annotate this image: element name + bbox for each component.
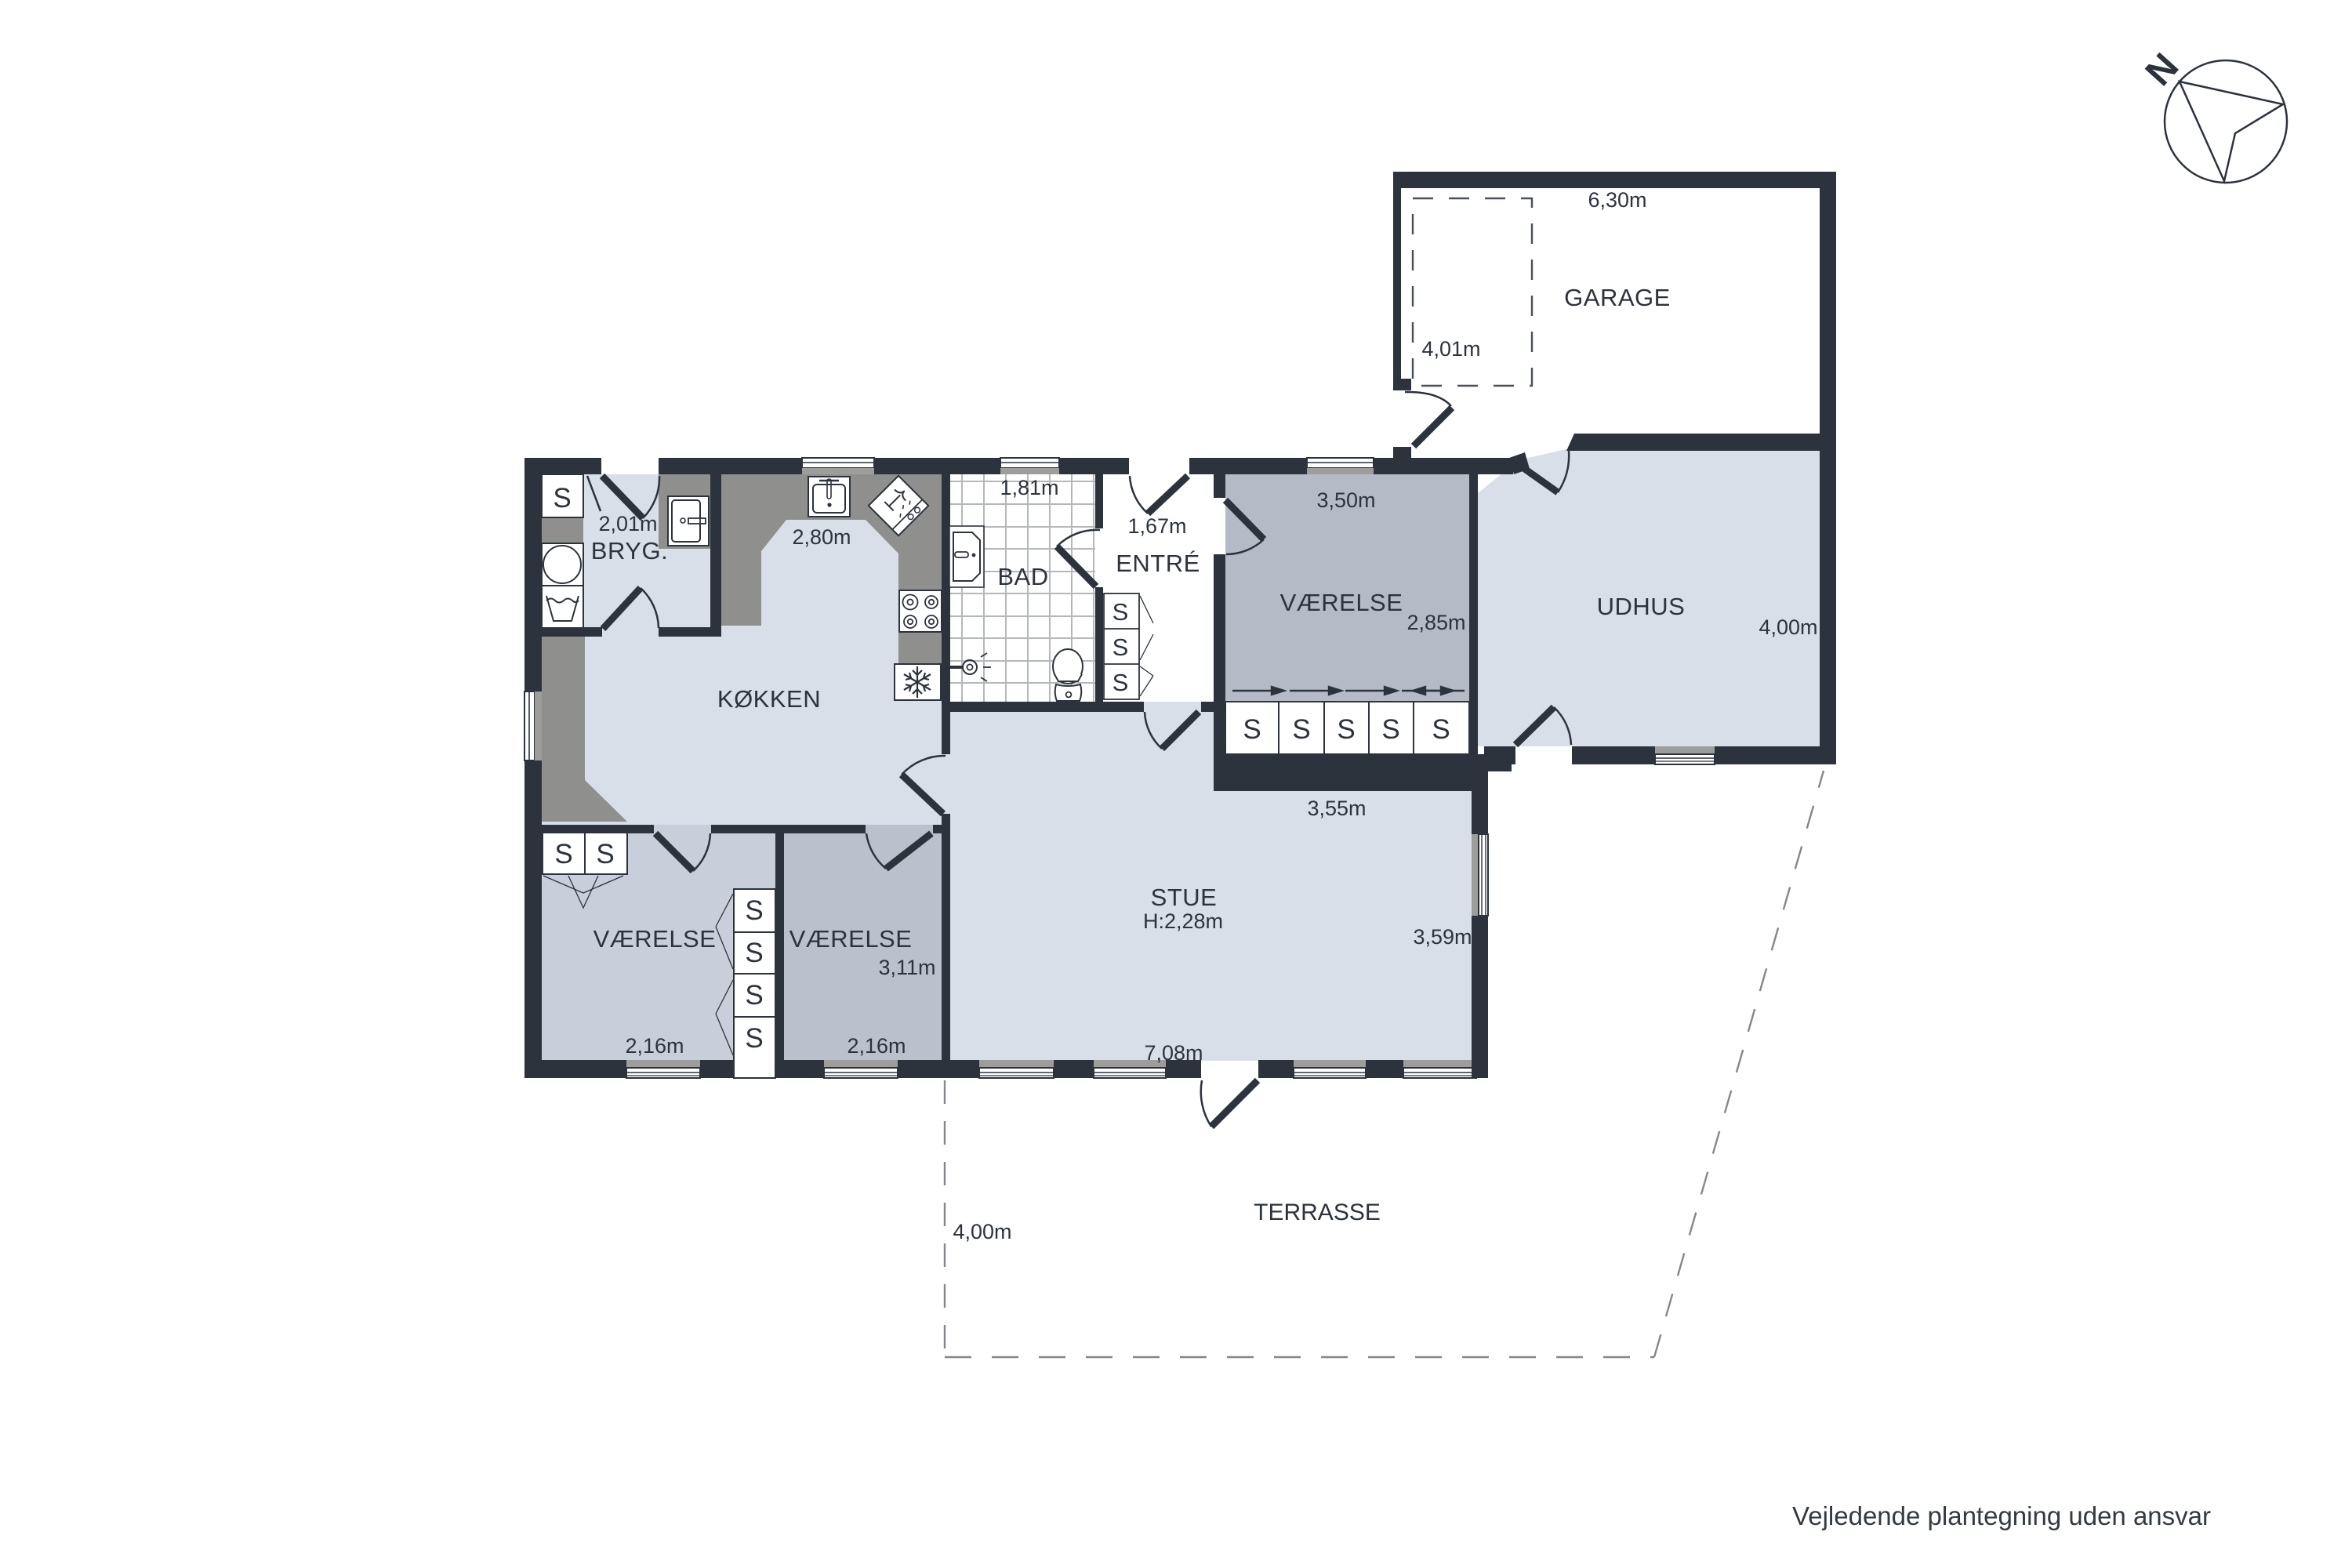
svg-text:S: S — [554, 839, 572, 869]
svg-text:3,55m: 3,55m — [1307, 797, 1366, 820]
svg-text:2,85m: 2,85m — [1406, 611, 1465, 634]
svg-text:7,08m: 7,08m — [1144, 1041, 1203, 1065]
svg-text:3,11m: 3,11m — [878, 956, 935, 979]
svg-text:1,67m: 1,67m — [1127, 514, 1186, 538]
svg-text:S: S — [745, 938, 763, 968]
svg-text:6,30m: 6,30m — [1588, 188, 1646, 212]
svg-text:4,01m: 4,01m — [1421, 337, 1480, 361]
svg-text:4,00m: 4,00m — [1759, 615, 1817, 639]
svg-text:VÆRELSE: VÆRELSE — [1280, 589, 1403, 616]
svg-text:S: S — [745, 980, 763, 1011]
svg-text:KØKKEN: KØKKEN — [717, 685, 821, 713]
svg-text:3,50m: 3,50m — [1316, 488, 1375, 512]
svg-text:S: S — [1381, 714, 1399, 745]
svg-text:BRYG.: BRYG. — [591, 537, 668, 564]
svg-text:S: S — [1432, 714, 1450, 745]
svg-text:Vejledende plantegning uden an: Vejledende plantegning uden ansvar — [1792, 1501, 2211, 1530]
svg-text:S: S — [1292, 714, 1310, 745]
svg-text:2,01m: 2,01m — [598, 512, 657, 535]
svg-text:S: S — [596, 839, 614, 869]
svg-text:STUE: STUE — [1151, 884, 1218, 911]
svg-text:S: S — [745, 895, 763, 926]
svg-text:2,80m: 2,80m — [792, 525, 851, 549]
svg-text:VÆRELSE: VÆRELSE — [789, 925, 913, 953]
svg-text:S: S — [1112, 669, 1129, 696]
svg-text:S: S — [1112, 598, 1129, 626]
svg-text:UDHUS: UDHUS — [1597, 593, 1686, 620]
svg-text:3,59m: 3,59m — [1413, 925, 1472, 949]
svg-text:S: S — [1112, 633, 1129, 661]
svg-text:ENTRÉ: ENTRÉ — [1116, 550, 1200, 577]
svg-text:S: S — [553, 483, 571, 514]
svg-text:2,16m: 2,16m — [847, 1034, 906, 1058]
svg-text:1,81m: 1,81m — [1000, 476, 1058, 499]
svg-text:S: S — [745, 1023, 763, 1054]
svg-text:VÆRELSE: VÆRELSE — [593, 925, 717, 953]
svg-text:TERRASSE: TERRASSE — [1254, 1200, 1381, 1225]
svg-text:S: S — [1337, 714, 1355, 745]
svg-text:2,16m: 2,16m — [625, 1034, 684, 1058]
svg-text:S: S — [1243, 714, 1261, 745]
svg-text:BAD: BAD — [997, 563, 1048, 590]
svg-text:H:2,28m: H:2,28m — [1143, 909, 1223, 933]
svg-text:4,00m: 4,00m — [953, 1220, 1011, 1243]
svg-text:GARAGE: GARAGE — [1564, 284, 1671, 311]
